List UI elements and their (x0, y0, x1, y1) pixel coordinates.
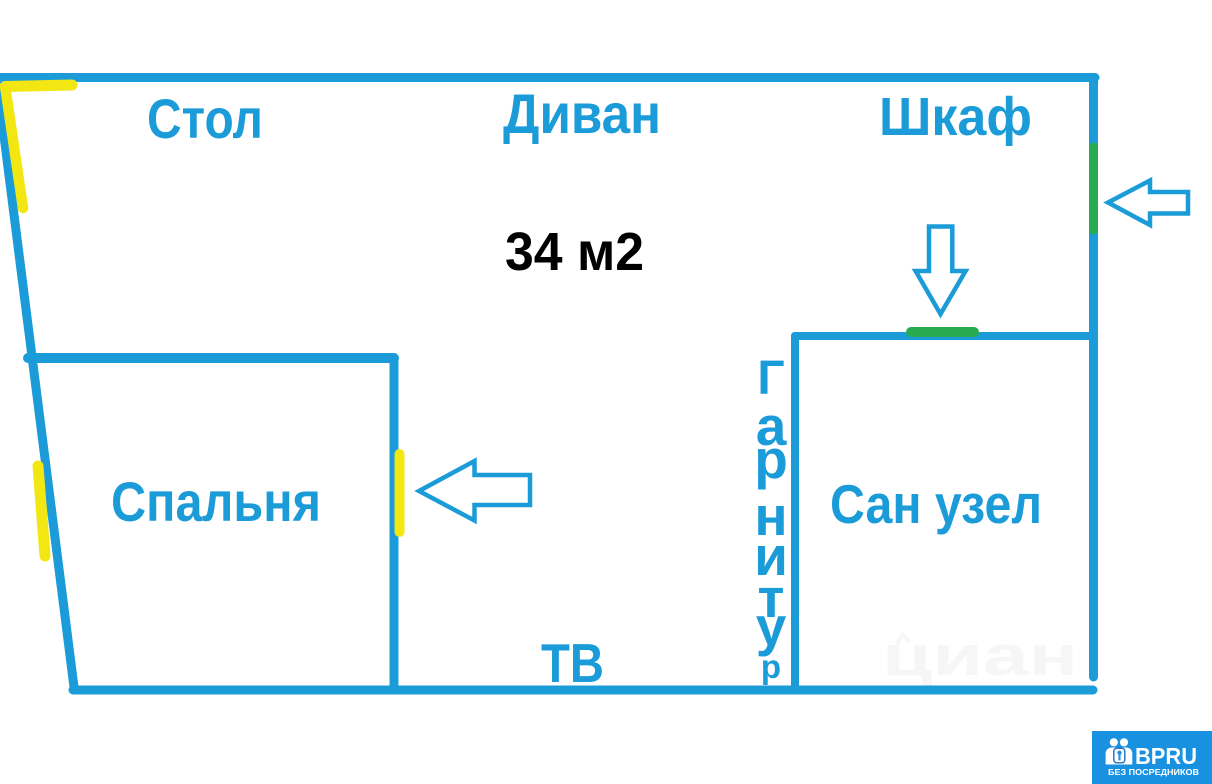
svg-text:Диван: Диван (503, 82, 661, 145)
svg-text:Шкаф: Шкаф (879, 87, 1032, 147)
svg-text:Спальня: Спальня (111, 470, 321, 533)
svg-text:р: р (754, 428, 788, 490)
svg-text:ТВ: ТВ (541, 632, 604, 694)
svg-text:Сан узел: Сан узел (830, 473, 1042, 535)
svg-text:БЕЗ ПОСРЕДНИКОВ: БЕЗ ПОСРЕДНИКОВ (1108, 767, 1199, 777)
svg-text:34 м2: 34 м2 (505, 222, 644, 282)
svg-text:BPRU: BPRU (1135, 743, 1197, 769)
svg-text:р: р (761, 648, 781, 685)
svg-text:циан: циан (882, 624, 1078, 688)
svg-text:Стол: Стол (147, 87, 263, 150)
